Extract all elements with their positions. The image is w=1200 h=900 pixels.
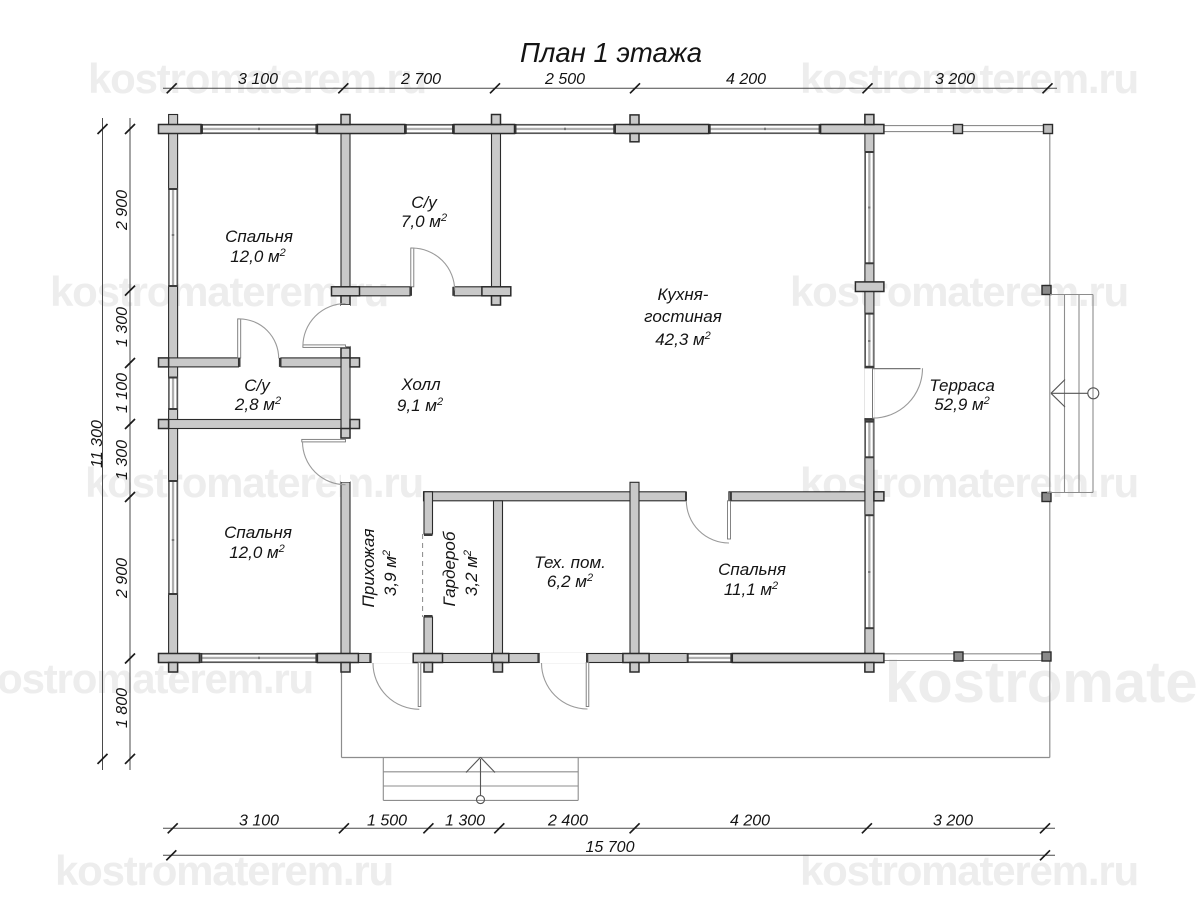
svg-text:7,0 м2: 7,0 м2 [401,212,447,231]
svg-text:Прихожая: Прихожая [359,529,378,608]
svg-text:Спальня: Спальня [718,560,786,579]
svg-text:3,2 м2: 3,2 м2 [462,550,481,596]
svg-text:12,0 м2: 12,0 м2 [230,247,286,266]
svg-text:3 200: 3 200 [933,813,973,830]
svg-text:Кухня-: Кухня- [658,285,709,304]
svg-text:гостиная: гостиная [644,307,722,326]
svg-text:2 500: 2 500 [544,71,585,88]
svg-text:С/у: С/у [411,193,438,212]
svg-text:kostromaterem.ru: kostromaterem.ru [85,459,423,506]
svg-text:2 400: 2 400 [547,813,588,830]
svg-text:3 100: 3 100 [239,813,279,830]
svg-text:4 200: 4 200 [726,71,766,88]
svg-text:3,9 м2: 3,9 м2 [381,550,400,596]
svg-text:2 900: 2 900 [114,190,131,231]
svg-text:52,9 м2: 52,9 м2 [934,395,990,414]
svg-text:3 200: 3 200 [935,71,975,88]
svg-text:4 200: 4 200 [730,813,770,830]
svg-text:Спальня: Спальня [225,227,293,246]
svg-text:С/у: С/у [244,376,271,395]
svg-text:12,0 м2: 12,0 м2 [229,543,285,562]
svg-text:Холл: Холл [400,375,441,394]
svg-text:42,3 м2: 42,3 м2 [655,330,711,349]
svg-text:kostromaterem.ru: kostromaterem.ru [800,847,1138,894]
svg-text:Гардероб: Гардероб [440,530,459,606]
svg-text:6,2 м2: 6,2 м2 [547,572,593,591]
svg-text:1 300: 1 300 [114,440,131,480]
svg-text:План 1 этажа: План 1 этажа [520,37,702,68]
svg-text:1 300: 1 300 [445,813,485,830]
svg-text:9,1 м2: 9,1 м2 [397,396,443,415]
svg-text:Тех. пом.: Тех. пом. [534,553,606,572]
svg-text:3 100: 3 100 [238,71,278,88]
svg-text:1 100: 1 100 [114,373,131,413]
svg-text:1 300: 1 300 [114,307,131,347]
svg-text:15 700: 15 700 [586,839,635,856]
svg-text:kostromaterem.ru: kostromaterem.ru [55,847,393,894]
svg-text:2 900: 2 900 [114,558,131,599]
svg-text:11 300: 11 300 [89,420,106,468]
svg-text:Спальня: Спальня [224,523,292,542]
svg-text:2 700: 2 700 [400,71,441,88]
svg-text:1 800: 1 800 [114,688,131,728]
svg-text:kostromaterem.ru: kostromaterem.ru [790,268,1128,315]
svg-text:2,8 м2: 2,8 м2 [234,395,281,414]
svg-text:Терраса: Терраса [929,376,995,395]
svg-text:11,1 м2: 11,1 м2 [724,580,778,599]
svg-text:1 500: 1 500 [367,813,407,830]
